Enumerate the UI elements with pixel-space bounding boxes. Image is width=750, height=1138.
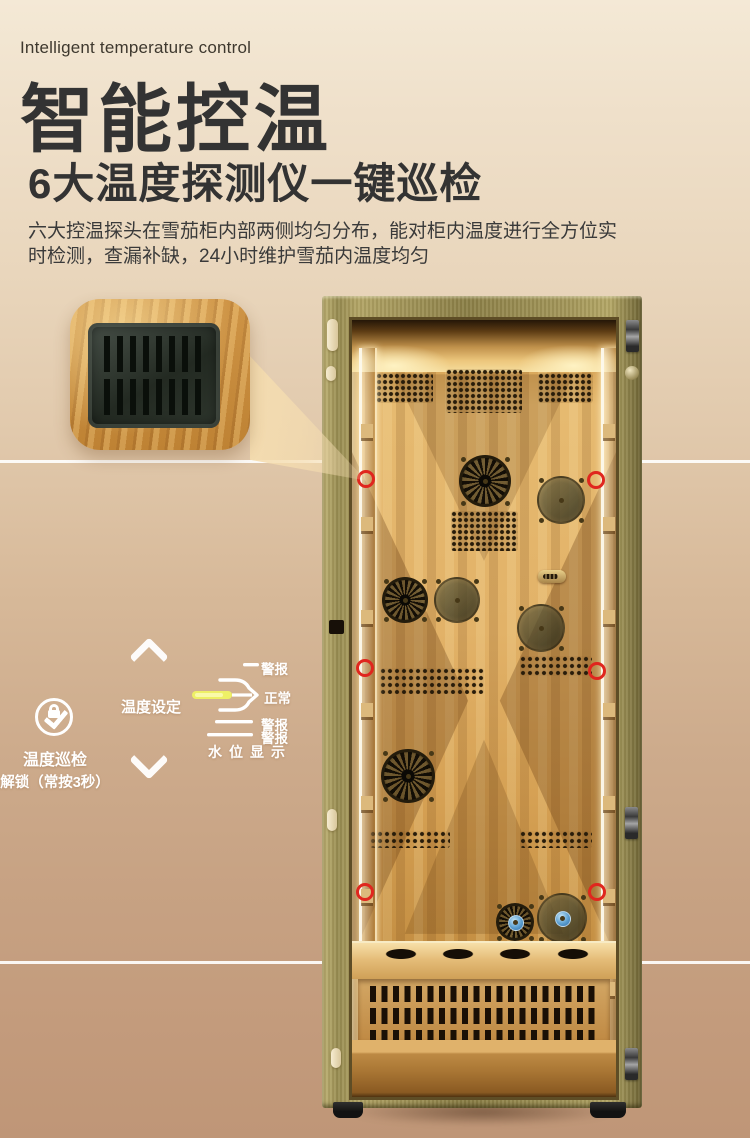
vent-dot-row [520, 656, 592, 676]
grille-slats-row [104, 379, 204, 415]
hinge [625, 1048, 638, 1080]
vent-dot-row [520, 831, 592, 848]
cabinet-foot-left [333, 1102, 363, 1118]
temp-setting-label: 温度设定 [121, 696, 181, 717]
sensor-connector [538, 570, 566, 583]
hinge [625, 807, 638, 839]
sensor-marker [587, 471, 605, 489]
chevron-down-icon [132, 750, 166, 776]
normal-label: 正常 [264, 687, 291, 707]
door-hinge-pill [326, 366, 336, 381]
cabinet-foot-right [590, 1102, 626, 1118]
cigar-cabinet-photo [322, 296, 642, 1128]
description-line-1: 六大控温探头在雪茄柜内部两侧均匀分布，能对柜内温度进行全方位实 [28, 219, 617, 244]
description-line-2: 时检测，查漏补缺，24小时维护雪茄内温度均匀 [28, 244, 617, 269]
patrol-label: 温度巡检 [0, 746, 110, 770]
fan-logo-sticker [508, 915, 524, 931]
unlock-label: 解锁（常按3秒） [0, 771, 116, 792]
vent-grid [446, 369, 522, 413]
water-level-diagram [190, 656, 290, 760]
vent-dot-row [380, 668, 484, 694]
vent-grid [376, 373, 433, 403]
interior-ceiling [352, 320, 616, 372]
vent-dot-row [370, 831, 450, 848]
vent-slot-row [370, 1008, 598, 1024]
alarm-label-top: 警报 [261, 658, 288, 678]
circulation-fan [382, 577, 428, 623]
base-vent-grille [358, 979, 610, 1040]
water-level-caption: 水位显示 [208, 742, 292, 762]
door-lock-slot [329, 620, 344, 634]
alarm-label-mid: 警报 [261, 714, 288, 734]
page-subtitle: 6大温度探测仪一键巡检 [28, 150, 482, 211]
sensor-marker [356, 883, 374, 901]
door-hinge-pill [331, 1048, 341, 1068]
sensor-grille [88, 323, 220, 428]
base-fan-deck [352, 941, 616, 979]
vent-grid [538, 373, 593, 403]
grille-slats-row [104, 336, 204, 372]
circulation-fan [381, 749, 435, 803]
product-promo-page: Intelligent temperature control 智能控温 6大温… [0, 0, 750, 1138]
fan-logo-sticker [555, 911, 571, 927]
vent-slot-row [370, 986, 598, 1002]
sensor-marker [588, 662, 606, 680]
check-icon [44, 704, 69, 730]
description: 六大控温探头在雪茄柜内部两侧均匀分布，能对柜内温度进行全方位实 时检测，查漏补缺… [28, 219, 617, 269]
sensor-marker [357, 470, 375, 488]
fan-opening [434, 577, 480, 623]
cabinet-interior [349, 317, 619, 1100]
hinge [626, 320, 639, 352]
humidifier-fan [496, 903, 534, 941]
chevron-up-icon [132, 640, 166, 666]
hinge-knob [625, 366, 639, 380]
lock-body-icon [48, 710, 60, 718]
door-hinge-pill [327, 809, 337, 831]
eyebrow-text: Intelligent temperature control [20, 38, 251, 58]
lock-shackle-icon [49, 704, 59, 713]
vent-grid [451, 511, 518, 551]
fan-opening [517, 604, 565, 652]
circulation-fan [459, 455, 511, 507]
sensor-marker [356, 659, 374, 677]
humidifier-fan [537, 893, 587, 943]
fan-opening [537, 476, 585, 524]
base-floor [352, 1040, 616, 1097]
alarm-label-low: 警报 [261, 727, 288, 747]
door-hinge-pill [327, 319, 338, 351]
sensor-closeup-inset [70, 299, 250, 450]
sensor-marker [588, 883, 606, 901]
patrol-unlock-icon [35, 698, 73, 736]
